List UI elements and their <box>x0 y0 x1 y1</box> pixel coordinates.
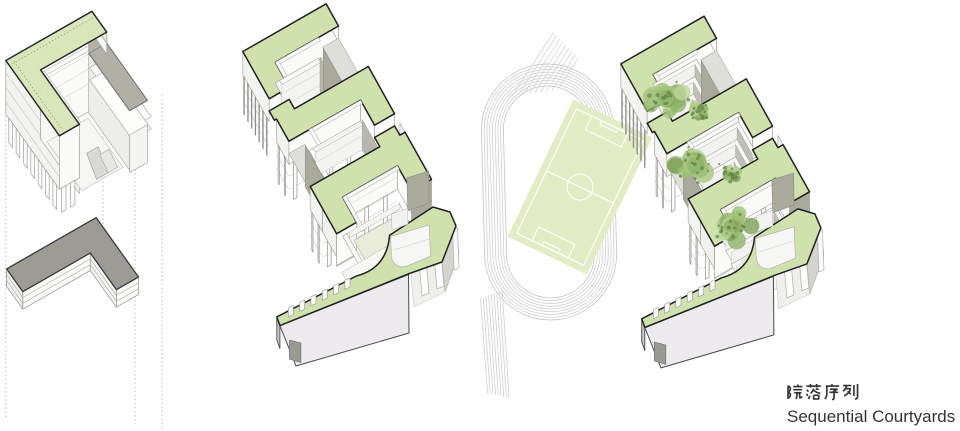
svg-text:Sequential Courtyards: Sequential Courtyards <box>787 407 955 426</box>
